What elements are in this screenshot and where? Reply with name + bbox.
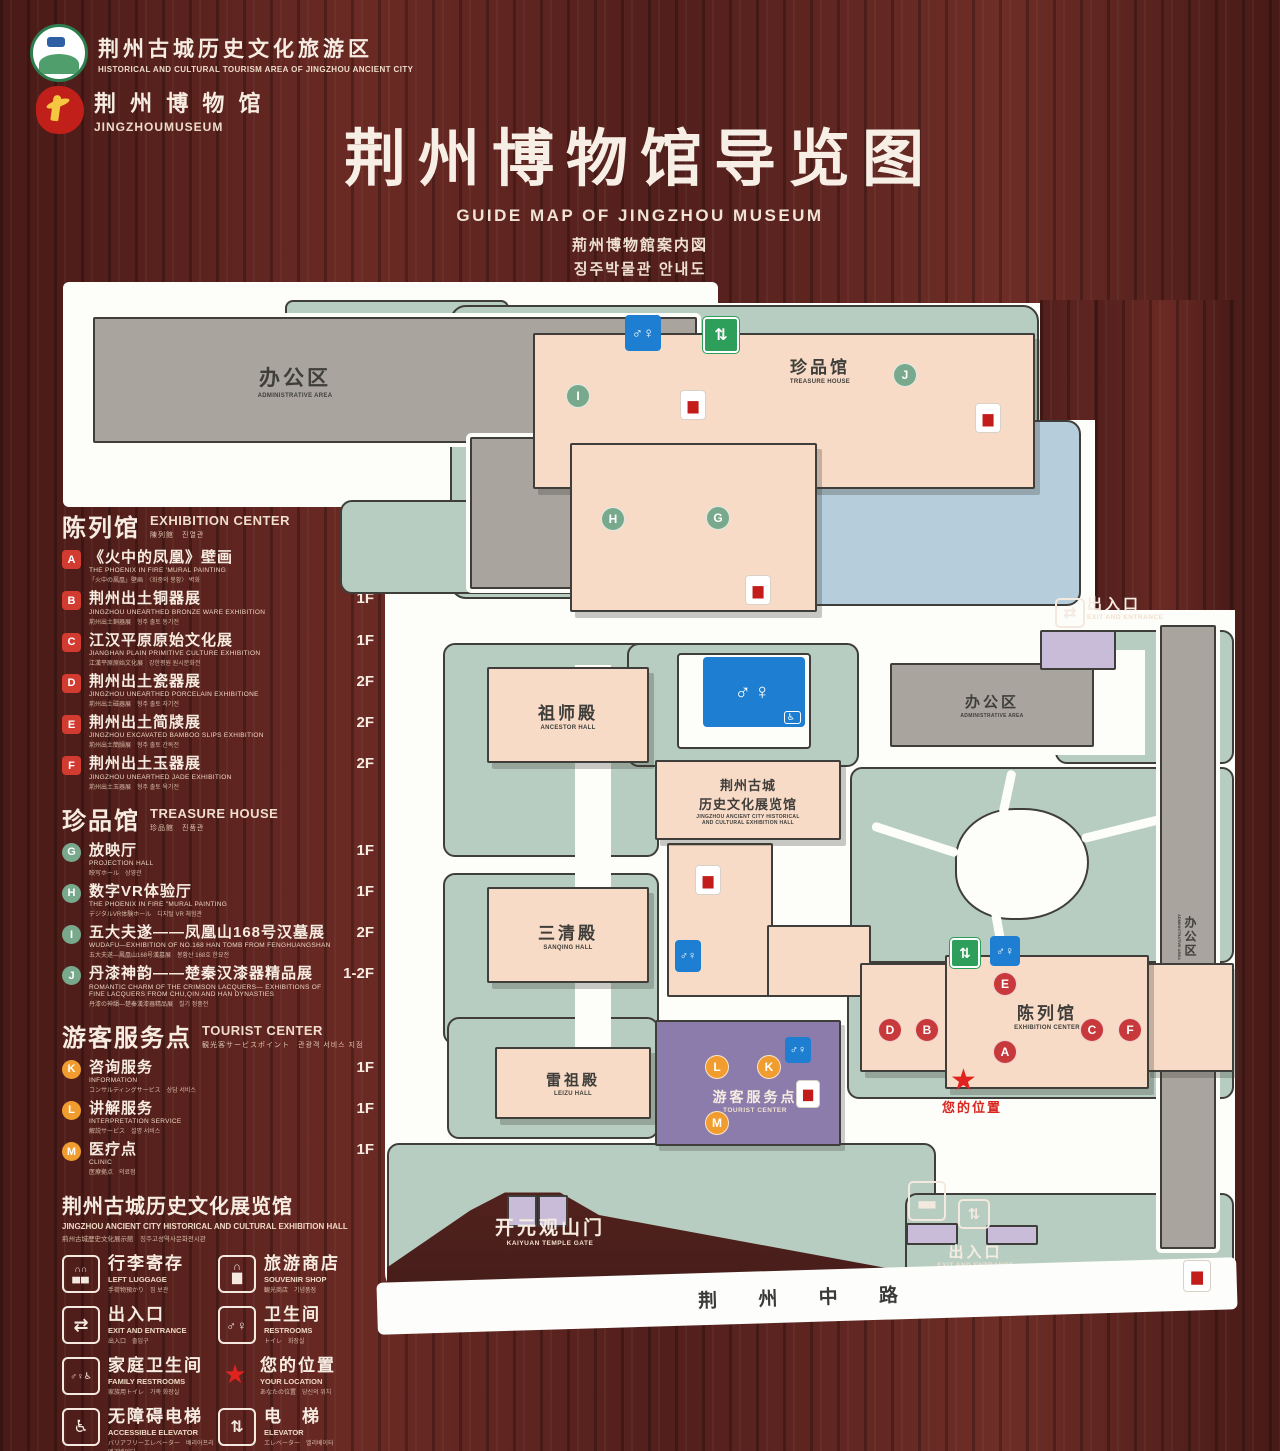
ancestor-label-zh: 祖师殿 [538,699,598,724]
gate-label-en: KAIYUAN TEMPLE GATE [435,1240,665,1247]
fire-extinguisher-icon: ▆ [1183,1260,1211,1292]
family-restroom-icon: ♿ [784,711,801,724]
facility-en: YOUR LOCATION [260,1377,336,1386]
admin-top-label-en: ADMINISTRATIVE AREA [258,393,333,399]
your-location-label: 您的位置 [917,1097,1027,1116]
fire-extinguisher-icon: ▆ [695,865,721,895]
gate-label-zh: 开元观山门 [435,1213,665,1240]
exit-top-label: 出入口 EXIT AND ENTRANCE [1087,593,1164,621]
treasure-label-zh: 珍品馆 [790,353,850,378]
tourism-area-name: 荆州古城历史文化旅游区 [98,33,413,63]
treasure-house-label: 珍品馆 TREASURE HOUSE [745,353,895,385]
admin-strip-label: 办公区 [1182,914,1199,960]
gate [1040,630,1116,670]
restroom-icon: ♂♀ [675,940,701,972]
building-historic-hall-wing [767,925,871,997]
sanqing-label-en: SANQING HALL [543,945,592,951]
marker-e: E [993,972,1017,996]
building-admin-strip: 办公区 ADMINISTRATIVE AREA [1160,625,1216,1249]
restroom-icon: ♂♀ [625,315,661,351]
admin-strip-label-en: ADMINISTRATIVE AREA [1177,914,1182,960]
facility-en: FAMILY RESTROOMS [108,1377,203,1386]
facility-zh: 电 梯 [264,1408,334,1427]
historic-label-zh2: 历史文化展览馆 [699,794,797,813]
exit-entrance-icon: ⇄ [1055,598,1085,628]
facility-sub: バリアフリーエレベーター 배리어프리 엘리베이터 [108,1438,218,1451]
admin-top-label: 办公区 [258,362,333,392]
facility-sub: 家族用トイレ 가족 화장실 [108,1387,203,1396]
leizu-label-zh: 雷祖殿 [546,1069,600,1090]
facility-icon [62,1408,100,1446]
tourism-area-emblem-icon [30,24,88,82]
tourism-area-logo: 荆州古城历史文化旅游区 HISTORICAL AND CULTURAL TOUR… [30,24,413,82]
fire-extinguisher-icon: ▆ [680,390,706,420]
museum-name-en: JINGZHOUMUSEUM [94,120,264,134]
tourism-area-name-en: HISTORICAL AND CULTURAL TOURISM AREA OF … [98,65,413,74]
admin-right-label-en: ADMINISTRATIVE AREA [960,713,1023,719]
facility-en: ACCESSIBLE ELEVATOR [108,1428,218,1437]
exit-entrance-icon: ⇅ [958,1199,990,1229]
marker-a: A [993,1040,1017,1064]
campus-map: 办公区 ADMINISTRATIVE AREA 办公区 ADMINISTRATI… [55,275,1235,1350]
elevator-icon: ⇅ [703,317,739,353]
tourist-center-label: 游客服务点 TOURIST CENTER [700,1087,810,1114]
marker-c: C [1080,1018,1104,1042]
exit-top-zh: 出入口 [1087,593,1164,614]
marker-b: B [915,1018,939,1042]
building-admin-right: 办公区 ADMINISTRATIVE AREA [890,663,1094,747]
marker-g: G [706,506,730,530]
restroom-icon: ♂♀ [785,1037,811,1063]
exhibition-label: 陈列馆 EXHIBITION CENTER [947,999,1147,1031]
restroom-icon: ♂♀ [990,936,1020,966]
facility-en: ELEVATOR [264,1428,334,1437]
kaiyuan-gate-label: 开元观山门 KAIYUAN TEMPLE GATE [435,1213,665,1247]
historic-label-zh1: 荆州古城 [720,775,776,794]
museum-emblem-icon [36,86,84,134]
facility-zh: 无障碍电梯 [108,1408,218,1427]
exhibition-label-zh: 陈列馆 [1017,999,1077,1024]
marker-d: D [878,1018,902,1042]
left-luggage-icon: ▄▄ [908,1181,946,1221]
facility-zh: 家庭卫生间 [108,1357,203,1376]
facility-sub: エレベーター 엘리베이터 [264,1438,334,1447]
facility-zh: 您的位置 [260,1357,336,1376]
wood-patch [1095,300,1235,610]
elevator-icon: ⇅ [950,938,980,968]
page-title-en: GUIDE MAP OF JINGZHOU MUSEUM [250,206,1030,226]
ancestor-label-en: ANCESTOR HALL [540,725,595,731]
fire-extinguisher-icon: ▆ [975,403,1001,433]
page-title-jp: 荊州博物館案内図 [250,234,1030,255]
facility-item: 无障碍电梯 ACCESSIBLE ELEVATOR バリアフリーエレベーター 배… [62,1408,218,1451]
marker-f: F [1118,1018,1142,1042]
treasure-label-en: TREASURE HOUSE [790,379,850,385]
left-luggage-icon: ▆ [796,1080,820,1108]
marker-m: M [705,1111,729,1135]
building-sanqing-hall: 三清殿 SANQING HALL [487,887,649,983]
facility-icon [62,1357,100,1395]
guide-map-poster: 荆州古城历史文化旅游区 HISTORICAL AND CULTURAL TOUR… [0,0,1280,1451]
facility-item: 电 梯 ELEVATOR エレベーター 엘리베이터 [218,1408,374,1451]
marker-i: I [566,384,590,408]
marker-j: J [893,363,917,387]
tourist-label-zh: 游客服务点 [700,1087,810,1107]
exit-bottom-zh: 出入口 [913,1241,1038,1262]
marker-k: K [757,1055,781,1079]
facility-item: 家庭卫生间 FAMILY RESTROOMS 家族用トイレ 가족 화장실 [62,1357,218,1401]
leizu-label-en: LEIZU HALL [554,1091,592,1097]
page-title: 荆州博物馆导览图 [250,108,1030,198]
museum-name: 荆 州 博 物 馆 [94,86,264,118]
facility-item: 您的位置 YOUR LOCATION あなたの位置 당신의 위치 [218,1357,374,1401]
your-location-star-icon: ★ [950,1068,977,1094]
facility-sub: あなたの位置 당신의 위치 [260,1387,336,1396]
exhibition-label-en: EXHIBITION CENTER [1014,1025,1080,1031]
historic-label-en2: AND CULTURAL EXHIBITION HALL [702,820,794,826]
admin-right-label: 办公区 [965,691,1019,712]
marker-h: H [601,507,625,531]
fire-extinguisher-icon: ▆ [745,575,771,605]
building-ancestor-hall: 祖师殿 ANCESTOR HALL [487,667,649,763]
building-historic-hall: 荆州古城 历史文化展览馆 JINGZHOU ANCIENT CITY HISTO… [655,760,841,840]
building-leizu-hall: 雷祖殿 LEIZU HALL [495,1047,651,1119]
restroom-icon: ♂♀ ♿ [703,657,805,727]
museum-logo: 荆 州 博 物 馆 JINGZHOUMUSEUM [36,86,264,134]
marker-l: L [705,1055,729,1079]
road-label: 荆 州 中 路 [698,1279,917,1312]
building-exhibition-right-wing [1145,963,1234,1072]
facility-icon [218,1408,256,1446]
page-title-block: 荆州博物馆导览图 GUIDE MAP OF JINGZHOU MUSEUM 荊州… [250,108,1030,279]
sanqing-label-zh: 三清殿 [538,919,598,944]
facility-icon [218,1357,252,1391]
exit-top-en: EXIT AND ENTRANCE [1087,614,1164,621]
